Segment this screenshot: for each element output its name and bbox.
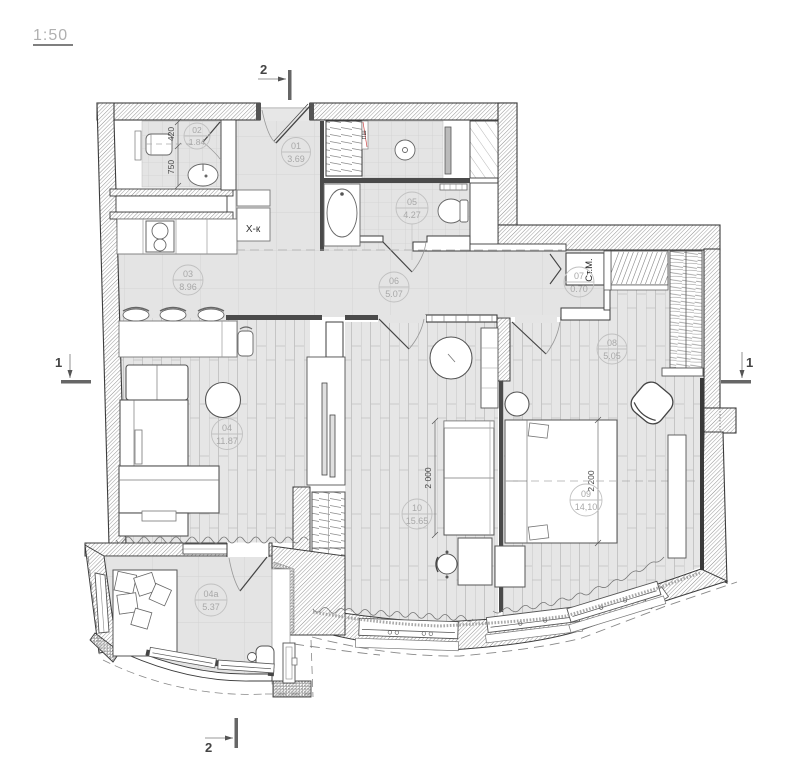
svg-text:14,10: 14,10 (575, 502, 598, 512)
svg-text:1: 1 (746, 355, 753, 370)
svg-text:2: 2 (205, 740, 212, 755)
svg-text:4.27: 4.27 (403, 210, 421, 220)
svg-text:ПШ: ПШ (362, 131, 368, 140)
svg-text:03: 03 (183, 269, 193, 279)
svg-text:02: 02 (192, 125, 202, 135)
svg-text:750: 750 (166, 160, 176, 174)
svg-text:8.96: 8.96 (179, 282, 197, 292)
svg-text:Х-к: Х-к (246, 224, 261, 235)
svg-text:1.84: 1.84 (189, 137, 206, 147)
svg-text:420: 420 (166, 127, 176, 141)
svg-text:5.05: 5.05 (603, 351, 621, 361)
svg-text:2: 2 (260, 62, 267, 77)
svg-text:3.69: 3.69 (287, 154, 305, 164)
svg-text:1: 1 (55, 355, 62, 370)
svg-text:5.37: 5.37 (202, 602, 220, 612)
svg-text:01: 01 (291, 141, 301, 151)
svg-text:05: 05 (407, 197, 417, 207)
svg-text:08: 08 (607, 338, 617, 348)
svg-text:15.65: 15.65 (406, 516, 429, 526)
svg-text:04: 04 (222, 423, 232, 433)
svg-text:06: 06 (389, 276, 399, 286)
svg-text:0.70: 0.70 (570, 284, 588, 294)
svg-text:5.07: 5.07 (385, 289, 403, 299)
svg-text:04a: 04a (203, 589, 218, 599)
svg-text:1:50: 1:50 (33, 27, 68, 44)
svg-text:09: 09 (581, 489, 591, 499)
svg-text:10: 10 (412, 503, 422, 513)
svg-text:11.87: 11.87 (216, 436, 238, 446)
svg-text:2 000: 2 000 (423, 467, 433, 489)
svg-text:07: 07 (574, 271, 584, 281)
